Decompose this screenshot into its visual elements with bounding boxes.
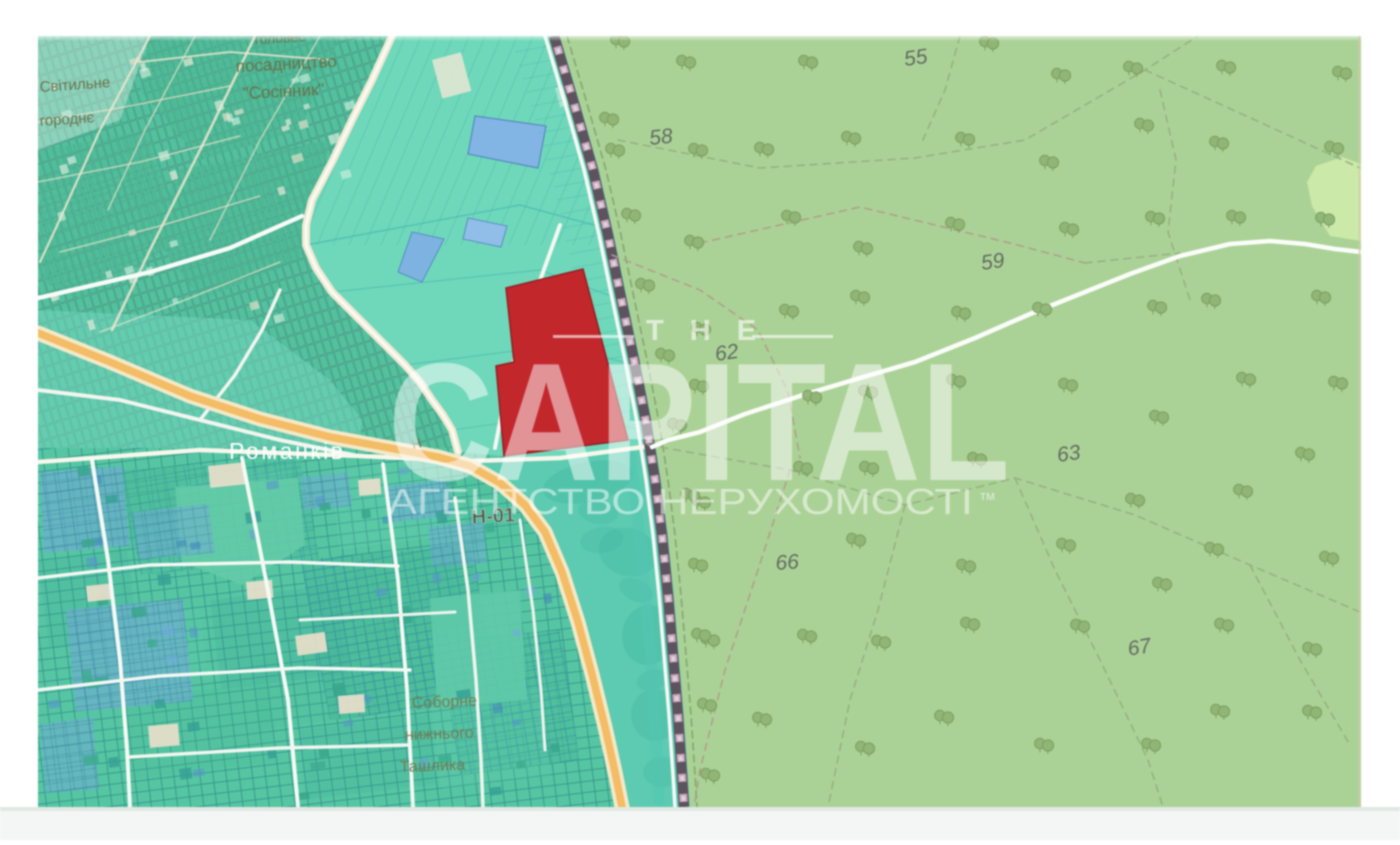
svg-text:АГЕНТСТВО НЕРУХОМОСТІ: АГЕНТСТВО НЕРУХОМОСТІ — [388, 481, 973, 522]
svg-text:тм: тм — [980, 488, 995, 503]
